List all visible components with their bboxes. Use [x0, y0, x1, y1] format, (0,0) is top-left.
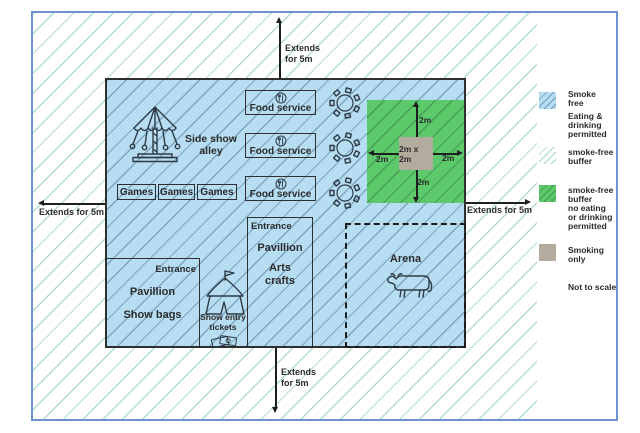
picnic-table-icon — [327, 85, 363, 121]
showground-smoking-map: 2m x 2m 2m 2m 2m 2m Arena Side show alle… — [0, 0, 640, 433]
smoking-only-zone: 2m x 2m — [399, 137, 433, 170]
show-entry-tickets-label: Show entry tickets — [199, 313, 247, 332]
arts-crafts-title: Pavillion — [247, 242, 313, 254]
show-bags-entrance-label: Entrance — [148, 264, 196, 275]
extends-arrowhead-top — [276, 17, 282, 23]
buffer-arrow-up — [416, 106, 418, 137]
games-label: Games — [120, 187, 153, 198]
buffer-2m-bottom: 2m — [417, 178, 429, 188]
show-bags-subtitle: Show bags — [105, 309, 200, 321]
games-stall: Games — [197, 184, 237, 200]
smoking-zone-size-label: 2m x 2m — [399, 144, 433, 164]
buffer-2m-top: 2m — [419, 116, 431, 126]
legend-smoking-only-label: Smoking only — [568, 246, 618, 264]
food-service-label: Food service — [246, 189, 315, 200]
show-bags-title: Pavillion — [105, 286, 200, 298]
games-stall: Games — [158, 184, 195, 200]
buffer-arrowhead-right — [457, 150, 463, 156]
extends-right-label: Extends for 5m — [467, 205, 532, 216]
buffer-arrowhead-left — [368, 150, 374, 156]
extends-arrow-left — [43, 203, 105, 205]
legend-swatch-smoking-only — [539, 244, 556, 261]
legend-buffer-label: smoke-free buffer — [568, 148, 618, 166]
legend-swatch-buffer-no-eating — [539, 185, 556, 202]
food-service-stall: Food service — [245, 133, 316, 158]
buffer-arrowhead-down — [413, 197, 419, 203]
circus-tent-icon — [203, 268, 245, 316]
extends-arrow-bottom — [275, 348, 277, 408]
legend-buffer-no-eating-label: smoke-free buffer no eating or drinking … — [568, 186, 618, 231]
arts-crafts-subtitle: Arts crafts — [247, 262, 313, 288]
buffer-2m-right: 2m — [442, 154, 454, 164]
carousel-icon — [126, 104, 184, 164]
legend-swatch-smoke-free — [539, 92, 556, 109]
extends-arrowhead-left — [38, 200, 44, 206]
games-stall: Games — [117, 184, 156, 200]
side-show-alley-label: Side show alley — [181, 134, 241, 157]
picnic-table-icon — [327, 175, 363, 211]
games-label: Games — [200, 187, 233, 198]
legend-not-to-scale: Not to scale — [568, 283, 623, 292]
extends-arrowhead-bottom — [272, 407, 278, 413]
games-label: Games — [160, 187, 193, 198]
extends-arrow-top — [279, 22, 281, 78]
legend-smoke-free-label: Smoke free — [568, 90, 618, 108]
food-service-stall: Food service — [245, 176, 316, 201]
arena-label: Arena — [345, 253, 466, 265]
arts-crafts-entrance-label: Entrance — [251, 221, 292, 232]
food-service-stall: Food service — [245, 90, 316, 115]
food-service-label: Food service — [246, 103, 315, 114]
legend-swatch-buffer — [539, 147, 556, 164]
extends-arrow-right — [466, 202, 526, 204]
extends-top-label: Extends for 5m — [285, 43, 320, 64]
tickets-icon — [210, 332, 240, 350]
picnic-table-icon — [327, 130, 363, 166]
buffer-2m-left: 2m — [376, 155, 388, 165]
extends-bottom-label: Extends for 5m — [281, 367, 316, 388]
extends-left-label: Extends for 5m — [39, 207, 104, 218]
cow-icon — [384, 271, 434, 301]
food-service-label: Food service — [246, 146, 315, 157]
buffer-arrowhead-up — [413, 101, 419, 107]
legend-smoke-free-sublabel: Eating & drinking permitted — [568, 112, 618, 139]
